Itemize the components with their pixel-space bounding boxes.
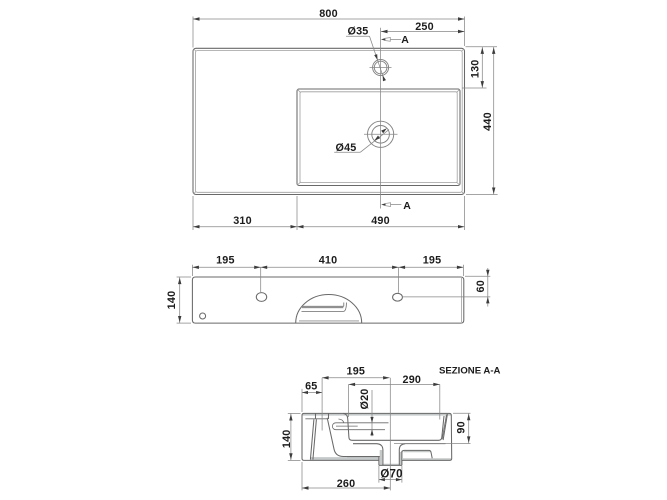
svg-text:60: 60 [475, 280, 487, 292]
svg-text:90: 90 [455, 421, 467, 433]
svg-text:65: 65 [305, 380, 317, 392]
svg-text:410: 410 [319, 254, 338, 266]
svg-text:195: 195 [423, 254, 442, 266]
svg-text:130: 130 [470, 59, 482, 78]
svg-text:140: 140 [281, 429, 293, 448]
svg-text:A: A [401, 34, 409, 46]
svg-text:SEZIONE A-A: SEZIONE A-A [439, 365, 501, 376]
svg-text:310: 310 [233, 215, 252, 227]
svg-text:Ø35: Ø35 [347, 26, 368, 38]
svg-text:440: 440 [482, 112, 494, 131]
svg-text:195: 195 [346, 366, 365, 378]
svg-text:Ø70: Ø70 [380, 469, 402, 481]
svg-text:140: 140 [166, 291, 178, 310]
svg-text:260: 260 [337, 478, 356, 490]
svg-text:250: 250 [415, 21, 434, 33]
svg-text:800: 800 [319, 8, 338, 20]
svg-text:290: 290 [402, 374, 421, 386]
svg-text:195: 195 [216, 254, 235, 266]
svg-text:Ø20: Ø20 [359, 388, 371, 409]
svg-text:490: 490 [371, 215, 390, 227]
svg-text:A: A [403, 200, 411, 212]
